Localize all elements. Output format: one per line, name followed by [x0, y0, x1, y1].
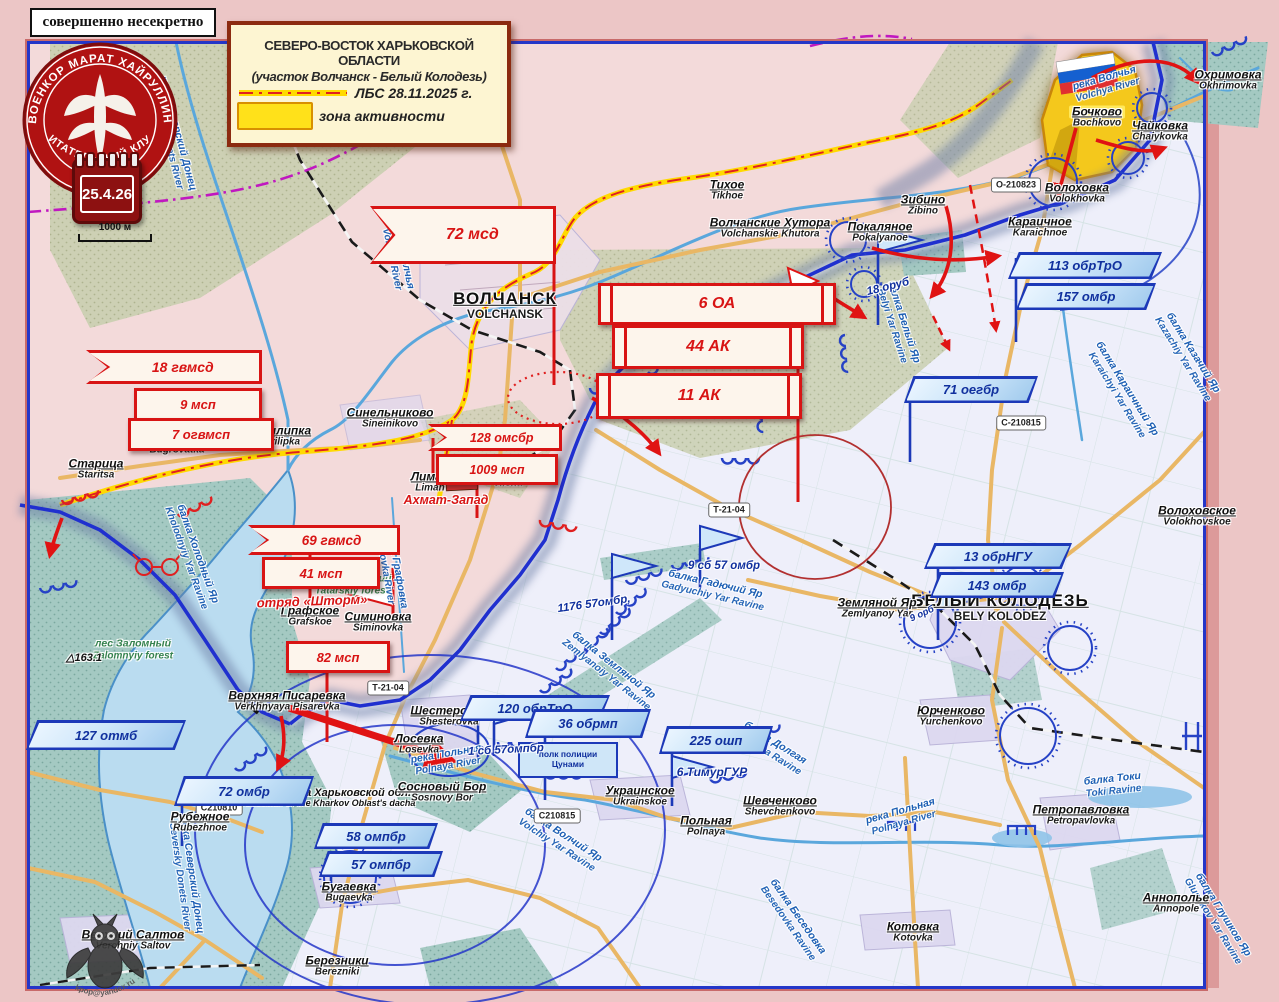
settlement-volchansk: ВОЛЧАНСКVOLCHANSK [453, 290, 557, 320]
settlement-name-en: Yurchenkovo [917, 717, 985, 728]
settlement-name-ru: Волчанские Хутора [710, 216, 831, 229]
settlement-name-en: Pokalyanoe [848, 233, 913, 244]
settlement-name-en: Bochkovo [1069, 118, 1125, 129]
settlement-name-en: Zibino [901, 206, 945, 217]
red-unit-label: 18 гвмсд [89, 353, 259, 381]
blue-unit-13-обрнгу: 13 обрНГУ [924, 543, 1072, 569]
blue-unit-127-отмб: 127 отмб [26, 720, 186, 750]
blue-unit-157-омбр: 157 омбр [1016, 283, 1156, 310]
settlement-sosnovy-bor: Сосновый БорSosnovy Bor [398, 780, 487, 803]
settlement-siminovka: СиминовкаSiminovka [345, 610, 412, 633]
settlement-name-ru: Покаляное [848, 220, 913, 233]
settlement-name-en: Siminovka [345, 623, 412, 634]
settlement-rubezhnoe: РубежноеRubezhnoe [171, 810, 230, 833]
settlement-name-ru: Верхняя Писаревка [228, 689, 345, 702]
settlement-polnaya: ПольнаяPolnaya [680, 814, 732, 837]
settlement-name-ru: Украинское [605, 784, 674, 797]
scale-label: 1000 м [78, 222, 152, 233]
settlement-name-ru: Бочково [1069, 105, 1125, 118]
road-label-с210815-5: С210815 [534, 809, 581, 824]
settlement-name-ru: Тихое [710, 178, 745, 191]
settlement-staritsa: СтарицаStaritsa [69, 457, 124, 480]
geo-label-polnaya-river: река ПольнаяPolnaya River [864, 796, 939, 837]
blue-unit-58-омпбр: 58 омпбр [314, 823, 438, 849]
geo-label-kazachiy-yar-ravine: балка Казачий ЯрKazachiy Yar Ravine [1153, 309, 1224, 403]
blue-unit-113-обртро: 113 обрТрО [1008, 252, 1162, 279]
settlement-name-en: Berezniki [305, 967, 368, 978]
settlement-name-en: Petropavlovka [1033, 816, 1130, 827]
blue-unit-label: 71 оегбр [907, 379, 1036, 401]
geo-label-zalomnyiy-forest: лес ЗаломныйZalomnyiy forest [93, 639, 173, 662]
settlement-name-en: Losevka [394, 745, 443, 756]
legend-lbs-row: ЛБС 28.11.2025 г. [237, 85, 501, 101]
settlement-name-ru: Польная [680, 814, 732, 827]
settlement-name-en: Kotovka [887, 933, 939, 944]
blue-unit-label: 143 омбр [933, 575, 1062, 596]
geo-label-seversky-donets-river: река Северский ДонецSeversky Donets Rive… [167, 816, 206, 936]
red-unit-41-мсп: 41 мсп [262, 557, 380, 589]
settlement-zibino: ЗибиноZibino [901, 193, 945, 216]
red-unit-7-огвмсп: 7 огвмсп [128, 418, 274, 451]
red-unit-69-гвмсд: 69 гвмсд [248, 525, 400, 555]
settlement-name-en: Polnaya [680, 827, 732, 838]
blue-unit-label: 36 обрмп [528, 712, 649, 736]
settlement-name-ru: Охримовка [1194, 68, 1261, 81]
lbs-label: ЛБС 28.11.2025 г. [355, 85, 472, 101]
settlement-losevka: ЛосевкаLosevka [394, 732, 443, 755]
settlement-name-en: Rubezhnoe [171, 823, 230, 834]
map-title: СЕВЕРО-ВОСТОК ХАРЬКОВСКОЙ ОБЛАСТИ [237, 38, 501, 68]
blue-unit-143-омбр: 143 омбр [930, 572, 1064, 598]
red-unit-18-гвмсд: 18 гвмсд [86, 350, 262, 384]
geo-label-toki-ravine: балка ТокиToki Ravine [1083, 771, 1142, 799]
blue-unit-label: 113 обрТрО [1011, 255, 1160, 277]
red-unit-44-ак: 44 АК [612, 325, 804, 369]
geo-label-karaichyi-yar-ravine: балка Караичный ЯрKaraichyi Yar Ravine [1084, 340, 1161, 444]
red-unit-ахмат-запад: Ахмат-Запад [404, 493, 489, 507]
zone-label: зона активности [319, 108, 445, 124]
geo-label-163-1: △163.1 [66, 652, 102, 664]
settlement-name-en: Tikhoe [710, 191, 745, 202]
lbs-line-icon [237, 87, 349, 99]
settlement-name-ru: Волоховское [1158, 504, 1236, 517]
settlement-name-ru: Бугаевка [322, 880, 377, 893]
blue-unit-1176-57омбр: 1176 57омбр, [557, 593, 632, 615]
geo-label-glushkov-yar-ravine: балка Глушков ЯрGlushkov Yar Ravine [1182, 870, 1254, 966]
geo-label-kholodnyiy-yar-ravine: балка Холодный ЯрKholodnyiy Yar Ravine [163, 501, 221, 611]
owl-watermark: kpop@yandex.ru [55, 908, 155, 1002]
settlement-name-en: Chaiykovka [1132, 132, 1188, 143]
red-unit-128-омсбр: 128 омсбр [428, 424, 562, 451]
blue-unit-label: 13 обрНГУ [927, 546, 1070, 567]
settlement-name-ru: Шевченково [743, 794, 817, 807]
settlement-name-ru: Караичное [1008, 215, 1072, 228]
red-unit-6-оа: 6 ОА [598, 283, 836, 325]
geo-label-besedovka-ravine: балка БеседовкаBesedovka Ravine [758, 877, 827, 963]
road-label-о-210823-0: О-210823 [991, 178, 1041, 193]
red-unit-label: 128 омсбр [431, 427, 559, 448]
settlement-name-ru: Рубежное [171, 810, 230, 823]
settlement-zemlyanoy-yar: Земляной ЯрZemlyanoy Yar [837, 596, 916, 619]
red-unit-9-мсп: 9 мсп [134, 388, 262, 421]
settlement-name-ru: Чайковка [1132, 119, 1188, 132]
settlement-name-en: Shevchenkovo [743, 807, 817, 818]
settlement-name-en: VOLCHANSK [453, 308, 557, 321]
red-unit-label: 72 мсд [373, 209, 553, 261]
settlement-name-ru: Котовка [887, 920, 939, 933]
settlement-name-ru: Юрченково [917, 704, 985, 717]
settlement-shevchenkovo: ШевченковоShevchenkovo [743, 794, 817, 817]
blue-unit-label: 57 омпбр [322, 854, 441, 875]
blue-unit-label: 72 омбр [177, 779, 312, 804]
settlement-petropavlovka: ПетропавловкаPetropavlovka [1033, 803, 1130, 826]
red-unit-82-мсп: 82 мсп [286, 641, 390, 673]
activity-zone-icon [237, 102, 313, 130]
settlement-name-ru: Волоховка [1045, 181, 1109, 194]
settlement-volokhovka: ВолоховкаVolokhovka [1045, 181, 1109, 204]
settlement-name-en: Sineinikovo [347, 419, 434, 430]
settlement-name-en: Karaichnoe [1008, 228, 1072, 239]
blue-unit-label: 127 отмб [29, 723, 184, 748]
settlement-name-ru: Синельниково [347, 406, 434, 419]
settlement-pokalyanoe: ПокаляноеPokalyanoe [848, 220, 913, 243]
settlement-name-en: Volokhovka [1045, 194, 1109, 205]
settlement-name-ru: Старица [69, 457, 124, 470]
geo-label-volchya-river: река ВолчьяVolchya River [1071, 64, 1140, 104]
settlement-name-en: BELY KOLODEZ [911, 610, 1089, 623]
title-legend-box: СЕВЕРО-ВОСТОК ХАРЬКОВСКОЙ ОБЛАСТИ (участ… [227, 21, 511, 147]
road-label-т-21-04-3: Т-21-04 [367, 681, 409, 696]
red-unit-11-ак: 11 АК [596, 373, 802, 419]
settlement-name-en: Volchanskie Khutora [710, 229, 831, 240]
settlement-name-ru: Лосевка [394, 732, 443, 745]
blue-unit-36-обрмп: 36 обрмп [525, 709, 651, 738]
settlement-name-ru: Сосновый Бор [398, 780, 487, 793]
road-label-с-210815-1: С-210815 [996, 416, 1046, 431]
settlement-volokhovskoe: ВолоховскоеVolokhovskoe [1158, 504, 1236, 527]
settlement-name-en: Sosnovy Bor [398, 793, 487, 804]
blue-unit-6-тимургур: 6 ТимурГУР [677, 765, 748, 779]
blue-unit-72-омбр: 72 омбр [174, 776, 314, 806]
settlement-name-ru: Зибино [901, 193, 945, 206]
settlement-okhrimovka: ОхримовкаOkhrimovka [1194, 68, 1261, 91]
map-subtitle: (участок Волчанск - Белый Колодезь) [237, 69, 501, 84]
blue-unit-label: 225 ошп [662, 729, 771, 752]
settlement-verkhnyaya-pisarevka: Верхняя ПисаревкаVerkhnyaya Pisarevka [228, 689, 345, 712]
blue-unit-225-ошп: 225 ошп [659, 726, 773, 754]
settlement-ukrainskoe: УкраинскоеUkrainskoe [605, 784, 674, 807]
settlement-name-ru: ВОЛЧАНСК [453, 290, 557, 308]
road-label-т-21-04-2: Т-21-04 [708, 503, 750, 518]
geo-label-gadyuchiy-yar-ravine: балка Гадючий ЯрGadyuchiy Yar Ravine [660, 567, 767, 613]
settlement-chaiykovka: ЧайковкаChaiykovka [1132, 119, 1188, 142]
settlement-bochkovo: БочковоBochkovo [1069, 105, 1125, 128]
red-unit-72-мсд: 72 мсд [370, 206, 556, 264]
red-unit-label: 69 гвмсд [251, 528, 397, 552]
red-unit-1009-мсп: 1009 мсп [436, 454, 558, 485]
blue-unit-label: 58 омпбр [317, 826, 436, 847]
settlement-name-ru: Симиновка [345, 610, 412, 623]
settlement-name-ru: Земляной Яр [837, 596, 916, 609]
scale-bar: 1000 м [78, 222, 152, 242]
settlement-name-en: Annopole [1143, 904, 1209, 915]
blue-unit-71-оегбр: 71 оегбр [904, 376, 1038, 403]
settlement-name-en: Zemlyanoy Yar [837, 609, 916, 620]
map-labels-layer: ВОЛЧАНСКVOLCHANSKБЕЛЫЙ КОЛОДЕЗЬBELY KOLO… [0, 0, 1279, 1002]
settlement-kotovka: КотовкаKotovka [887, 920, 939, 943]
settlement-annopole: АннопольеAnnopole [1143, 891, 1209, 914]
settlement-yurchenkovo: ЮрченковоYurchenkovo [917, 704, 985, 727]
settlement-name-en: Verkhnyaya Pisarevka [228, 702, 345, 713]
settlement-name-ru: Березники [305, 954, 368, 967]
blue-unit-label: 157 омбр [1019, 286, 1154, 308]
settlement-karaichnoe: КараичноеKaraichnoe [1008, 215, 1072, 238]
settlement-name-en: Okhrimovka [1194, 81, 1261, 92]
situation-map: ВОЛЧАНСКVOLCHANSKБЕЛЫЙ КОЛОДЕЗЬBELY KOLO… [0, 0, 1279, 1002]
legend-zone-row: зона активности [237, 102, 501, 130]
settlement-name-en: Bugaevka [322, 893, 377, 904]
settlement-berezniki: БерезникиBerezniki [305, 954, 368, 977]
blue-unit-57-омпбр: 57 омпбр [319, 851, 443, 877]
calendar-icon: 25.4.26 [72, 158, 142, 224]
settlement-tikhoe: ТихоеTikhoe [710, 178, 745, 201]
settlement-name-en: Volokhovskoe [1158, 517, 1236, 528]
settlement-bugaevka: БугаевкаBugaevka [322, 880, 377, 903]
settlement-name-en: Grafskoe [281, 617, 339, 628]
settlement-name-en: Ukrainskoe [605, 797, 674, 808]
calendar-date: 25.4.26 [80, 175, 134, 213]
settlement-name-ru: Петропавловка [1033, 803, 1130, 816]
settlement-name-ru: Аннополье [1143, 891, 1209, 904]
settlement-volchanskie-khutora: Волчанские ХутораVolchanskie Khutora [710, 216, 831, 239]
blue-unit-9-сб-57-омбр: 9 сб 57 омбр [688, 560, 760, 572]
settlement-sineinikovo: СинельниковоSineinikovo [347, 406, 434, 429]
settlement-name-en: Staritsa [69, 470, 124, 481]
red-unit-отряд-шторм: отряд «Шторм» [256, 592, 367, 611]
classification-stamp: совершенно несекретно [30, 8, 216, 37]
